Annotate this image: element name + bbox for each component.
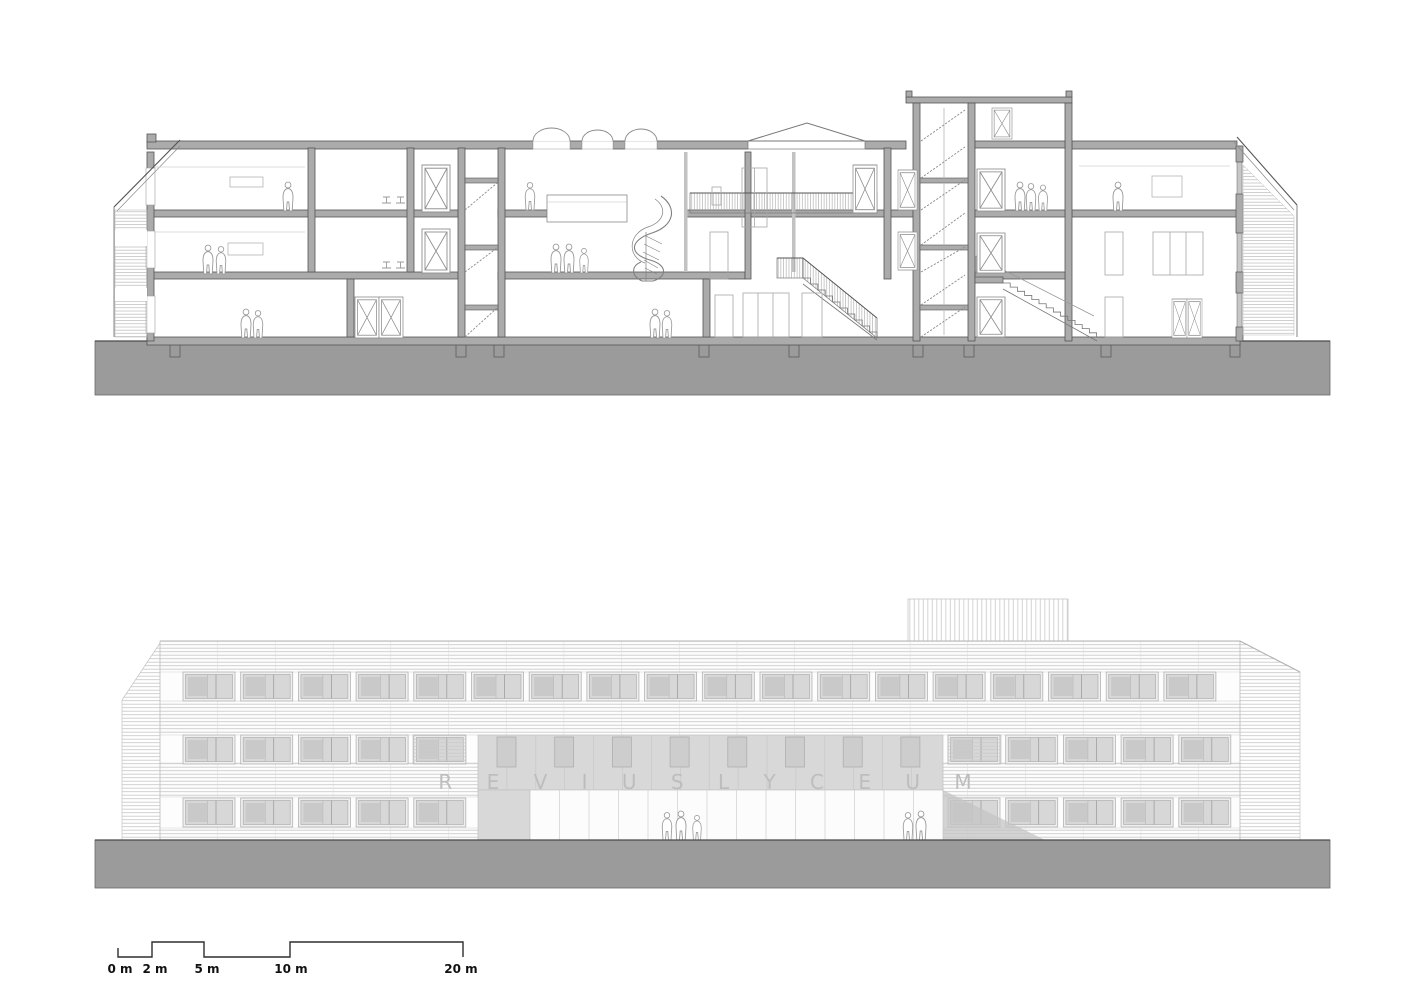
building-section-drawing	[95, 91, 1330, 395]
inner-stair-shaft	[465, 178, 498, 337]
rooftop-plant-box	[908, 599, 1068, 641]
scale-label-5m: 5 m	[194, 962, 219, 976]
drawing-canvas: R E V I U S L Y C E U M 0 m 2 m 5 m 10 m	[0, 0, 1415, 1000]
scale-bar-line	[118, 942, 463, 957]
elevation-ground-band	[95, 840, 1330, 888]
right-corner-return	[1240, 641, 1300, 840]
scale-label-10m: 10 m	[274, 962, 307, 976]
tower-stair-flights	[921, 110, 965, 337]
section-ground-band	[95, 341, 1330, 395]
section-ground-fill	[95, 341, 1330, 395]
right-chamfer	[1234, 137, 1297, 341]
elevation-ground-fill	[95, 840, 1330, 888]
gallery-parapet	[547, 195, 627, 222]
stool-symbols	[382, 197, 405, 268]
scale-bar: 0 m 2 m 5 m 10 m 20 m	[107, 942, 477, 976]
left-corner-return	[122, 643, 160, 840]
building-sign: R E V I U S L Y C E U M	[438, 770, 985, 794]
ground-slab	[147, 337, 1240, 345]
roof-monitor	[748, 123, 865, 149]
building-elevation-drawing: R E V I U S L Y C E U M	[95, 599, 1330, 888]
scale-label-2m: 2 m	[142, 962, 167, 976]
dome-skylights	[533, 128, 657, 149]
scale-label-0m: 0 m	[107, 962, 132, 976]
spiral-stair	[632, 196, 671, 281]
scale-label-20m: 20 m	[444, 962, 477, 976]
left-wall-openings	[146, 168, 155, 333]
architectural-drawing-sheet: R E V I U S L Y C E U M 0 m 2 m 5 m 10 m	[0, 0, 1415, 1000]
